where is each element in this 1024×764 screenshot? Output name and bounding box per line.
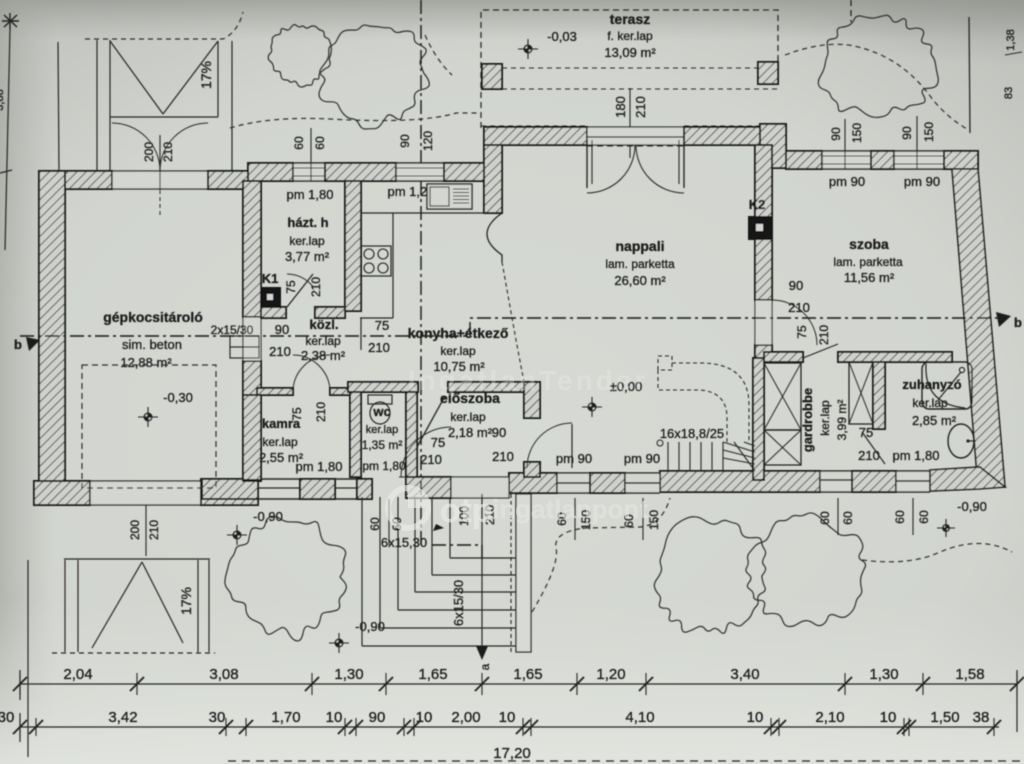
svg-text:-0,03: -0,03 xyxy=(547,29,577,44)
svg-text:210: 210 xyxy=(817,325,831,345)
svg-text:60: 60 xyxy=(917,510,931,524)
svg-text:6x15/30: 6x15/30 xyxy=(451,580,466,626)
svg-text:pm 1,80: pm 1,80 xyxy=(296,459,343,474)
svg-text:30: 30 xyxy=(0,709,14,726)
svg-text:3,40: 3,40 xyxy=(730,666,759,683)
svg-text:17%: 17% xyxy=(198,61,214,89)
svg-text:2x15/30: 2x15/30 xyxy=(211,323,254,337)
svg-text:nappali: nappali xyxy=(615,238,664,254)
svg-text:1,38: 1,38 xyxy=(1005,29,1017,50)
svg-text:60: 60 xyxy=(292,136,306,150)
svg-text:150: 150 xyxy=(850,123,864,143)
svg-text:pm 1,80: pm 1,80 xyxy=(362,459,406,473)
svg-text:sim. beton: sim. beton xyxy=(122,337,182,352)
svg-text:szoba: szoba xyxy=(849,236,889,252)
svg-text:120: 120 xyxy=(421,131,435,151)
svg-text:1,65: 1,65 xyxy=(513,666,542,683)
svg-text:180: 180 xyxy=(613,96,628,118)
svg-text:pm 1,80: pm 1,80 xyxy=(893,448,940,463)
svg-text:210: 210 xyxy=(309,277,323,297)
svg-text:83: 83 xyxy=(1003,87,1015,99)
svg-text:16x18,8/25: 16x18,8/25 xyxy=(660,426,724,441)
svg-text:K1: K1 xyxy=(262,271,279,286)
svg-text:ker.lap: ker.lap xyxy=(366,424,398,436)
svg-text:1,50: 1,50 xyxy=(930,709,959,726)
svg-text:90: 90 xyxy=(789,278,803,293)
svg-text:a: a xyxy=(478,663,492,670)
svg-text:17%: 17% xyxy=(178,587,194,615)
svg-text:150: 150 xyxy=(647,510,661,530)
svg-text:90: 90 xyxy=(398,134,412,148)
svg-text:75: 75 xyxy=(795,325,809,339)
svg-text:ker.lap: ker.lap xyxy=(818,400,832,436)
svg-text:13,09 m²: 13,09 m² xyxy=(604,45,656,60)
svg-text:3,99 m²: 3,99 m² xyxy=(835,400,849,441)
svg-text:2,18 m²: 2,18 m² xyxy=(448,425,493,440)
svg-text:75: 75 xyxy=(375,318,389,333)
svg-text:pm 90: pm 90 xyxy=(904,174,940,189)
svg-text:gardrobbe: gardrobbe xyxy=(800,388,815,452)
svg-text:2,85 m²: 2,85 m² xyxy=(912,413,957,428)
svg-text:60: 60 xyxy=(368,517,382,531)
svg-text:terasz: terasz xyxy=(610,11,650,27)
svg-text:1,35 m²: 1,35 m² xyxy=(362,438,403,452)
svg-text:10: 10 xyxy=(747,709,764,726)
svg-text:1,58: 1,58 xyxy=(955,666,984,683)
svg-text:26,60 m²: 26,60 m² xyxy=(614,273,666,288)
svg-text:3,08: 3,08 xyxy=(209,666,238,683)
svg-text:210: 210 xyxy=(269,344,291,359)
svg-text:-0,30: -0,30 xyxy=(163,390,193,405)
svg-text:210: 210 xyxy=(858,448,880,463)
svg-text:otp: otp xyxy=(440,492,493,530)
svg-text:210: 210 xyxy=(788,300,810,315)
svg-text:75: 75 xyxy=(290,407,304,421)
svg-text:ker.lap: ker.lap xyxy=(262,435,298,449)
svg-text:IngatlanTender: IngatlanTender xyxy=(408,365,649,396)
svg-text:210: 210 xyxy=(314,402,328,422)
svg-text:210: 210 xyxy=(633,96,648,118)
svg-text:150: 150 xyxy=(922,122,936,142)
svg-text:lam. parketta: lam. parketta xyxy=(833,255,903,269)
svg-text:pm 90: pm 90 xyxy=(556,451,592,466)
svg-text:75: 75 xyxy=(859,425,873,440)
svg-text:200: 200 xyxy=(142,142,156,162)
svg-text:12,88 m²: 12,88 m² xyxy=(120,355,172,370)
svg-text:3,77 m²: 3,77 m² xyxy=(285,249,330,264)
svg-text:90: 90 xyxy=(900,126,914,140)
svg-text:4,10: 4,10 xyxy=(625,709,654,726)
svg-text:10: 10 xyxy=(880,709,897,726)
svg-text:f. ker.lap: f. ker.lap xyxy=(607,29,653,43)
svg-text:90: 90 xyxy=(369,709,386,726)
svg-text:házt. h: házt. h xyxy=(287,215,328,230)
svg-text:1,20: 1,20 xyxy=(596,666,625,683)
svg-text:60: 60 xyxy=(841,511,855,525)
svg-text:10: 10 xyxy=(499,709,516,726)
svg-text:közl.: közl. xyxy=(310,317,339,332)
svg-text:210: 210 xyxy=(368,340,390,355)
svg-text:ker.lap: ker.lap xyxy=(440,344,476,358)
svg-text:6x15,30: 6x15,30 xyxy=(381,535,427,550)
svg-text:2,38 m²: 2,38 m² xyxy=(301,348,346,363)
svg-text:ker.lap: ker.lap xyxy=(289,234,325,248)
svg-text:38: 38 xyxy=(973,709,990,726)
svg-text:75: 75 xyxy=(431,435,445,450)
svg-text:60: 60 xyxy=(313,136,327,150)
svg-text:30: 30 xyxy=(209,709,226,726)
svg-text:210: 210 xyxy=(147,520,161,540)
svg-text:gépkocsitároló: gépkocsitároló xyxy=(103,309,203,325)
svg-text:3,42: 3,42 xyxy=(108,709,137,726)
svg-text:-0,90: -0,90 xyxy=(253,509,283,524)
svg-text:ker.lap: ker.lap xyxy=(912,396,948,410)
svg-text:10: 10 xyxy=(416,709,433,726)
svg-text:b: b xyxy=(1014,315,1022,330)
svg-text:210: 210 xyxy=(492,449,514,464)
svg-text:1,70: 1,70 xyxy=(271,709,300,726)
svg-text:10: 10 xyxy=(326,709,343,726)
svg-text:2,04: 2,04 xyxy=(63,666,92,683)
svg-text:ingatlanpont: ingatlanpont xyxy=(492,494,648,524)
svg-text:konyha+étkező: konyha+étkező xyxy=(408,325,509,341)
svg-text:90: 90 xyxy=(829,127,843,141)
svg-text:pm 1,80: pm 1,80 xyxy=(287,187,334,202)
svg-text:1,30: 1,30 xyxy=(334,666,363,683)
svg-text:K2: K2 xyxy=(749,197,766,212)
svg-text:-0,90: -0,90 xyxy=(957,499,987,514)
svg-text:90: 90 xyxy=(492,425,506,440)
svg-text:11,56 m²: 11,56 m² xyxy=(844,270,895,285)
svg-text:2,00: 2,00 xyxy=(451,709,480,726)
svg-text:ker.lap: ker.lap xyxy=(450,410,486,424)
svg-text:lam. parketta: lam. parketta xyxy=(605,257,675,271)
svg-text:2,10: 2,10 xyxy=(815,709,844,726)
svg-text:60: 60 xyxy=(893,510,907,524)
svg-text:1,65: 1,65 xyxy=(418,666,447,683)
svg-text:-0,90: -0,90 xyxy=(355,619,385,634)
svg-text:zuhanyzó: zuhanyzó xyxy=(902,377,961,392)
svg-text:pm 90: pm 90 xyxy=(829,174,865,189)
svg-text:75: 75 xyxy=(284,280,298,294)
svg-text:210: 210 xyxy=(420,452,442,467)
svg-text:200: 200 xyxy=(128,520,142,540)
svg-text:pm 90: pm 90 xyxy=(624,451,660,466)
svg-text:17,20: 17,20 xyxy=(493,745,531,762)
svg-text:b: b xyxy=(14,337,22,352)
svg-text:1,30: 1,30 xyxy=(869,666,898,683)
svg-text:90: 90 xyxy=(275,322,289,337)
svg-text:3,88: 3,88 xyxy=(0,89,6,110)
